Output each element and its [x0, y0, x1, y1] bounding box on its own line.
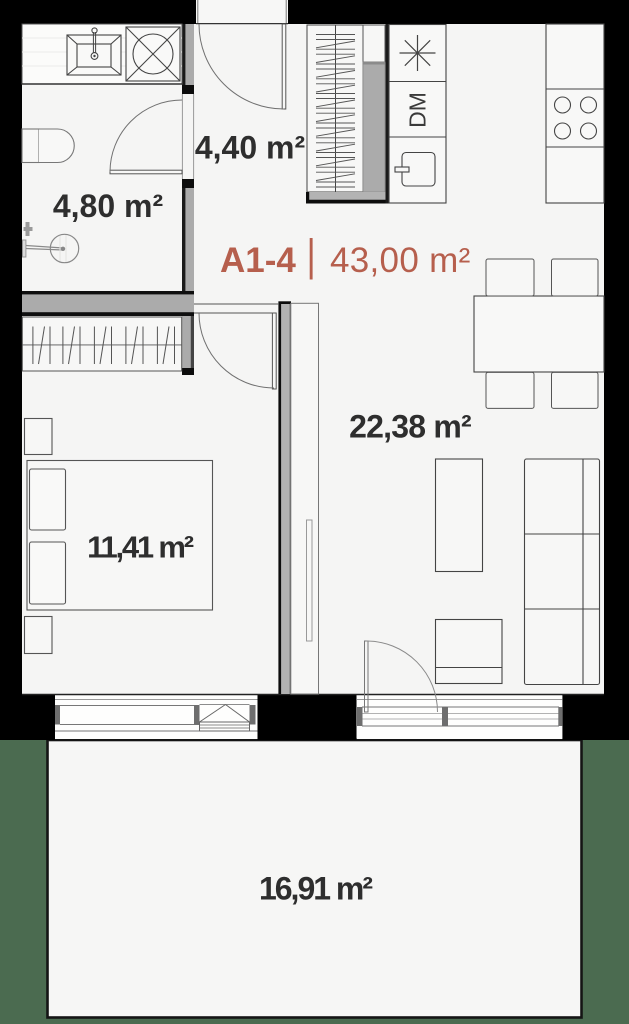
svg-text:4,40 m²: 4,40 m²	[195, 130, 305, 166]
svg-text:16,91 m²: 16,91 m²	[259, 871, 372, 907]
svg-text:4,80 m²: 4,80 m²	[53, 188, 163, 224]
svg-text:22,38 m²: 22,38 m²	[349, 409, 471, 445]
svg-text:11,41 m²: 11,41 m²	[87, 530, 194, 565]
svg-text:DM: DM	[405, 92, 431, 128]
svg-text:A1-4: A1-4	[220, 241, 296, 280]
svg-text:43,00 m²: 43,00 m²	[330, 241, 471, 280]
